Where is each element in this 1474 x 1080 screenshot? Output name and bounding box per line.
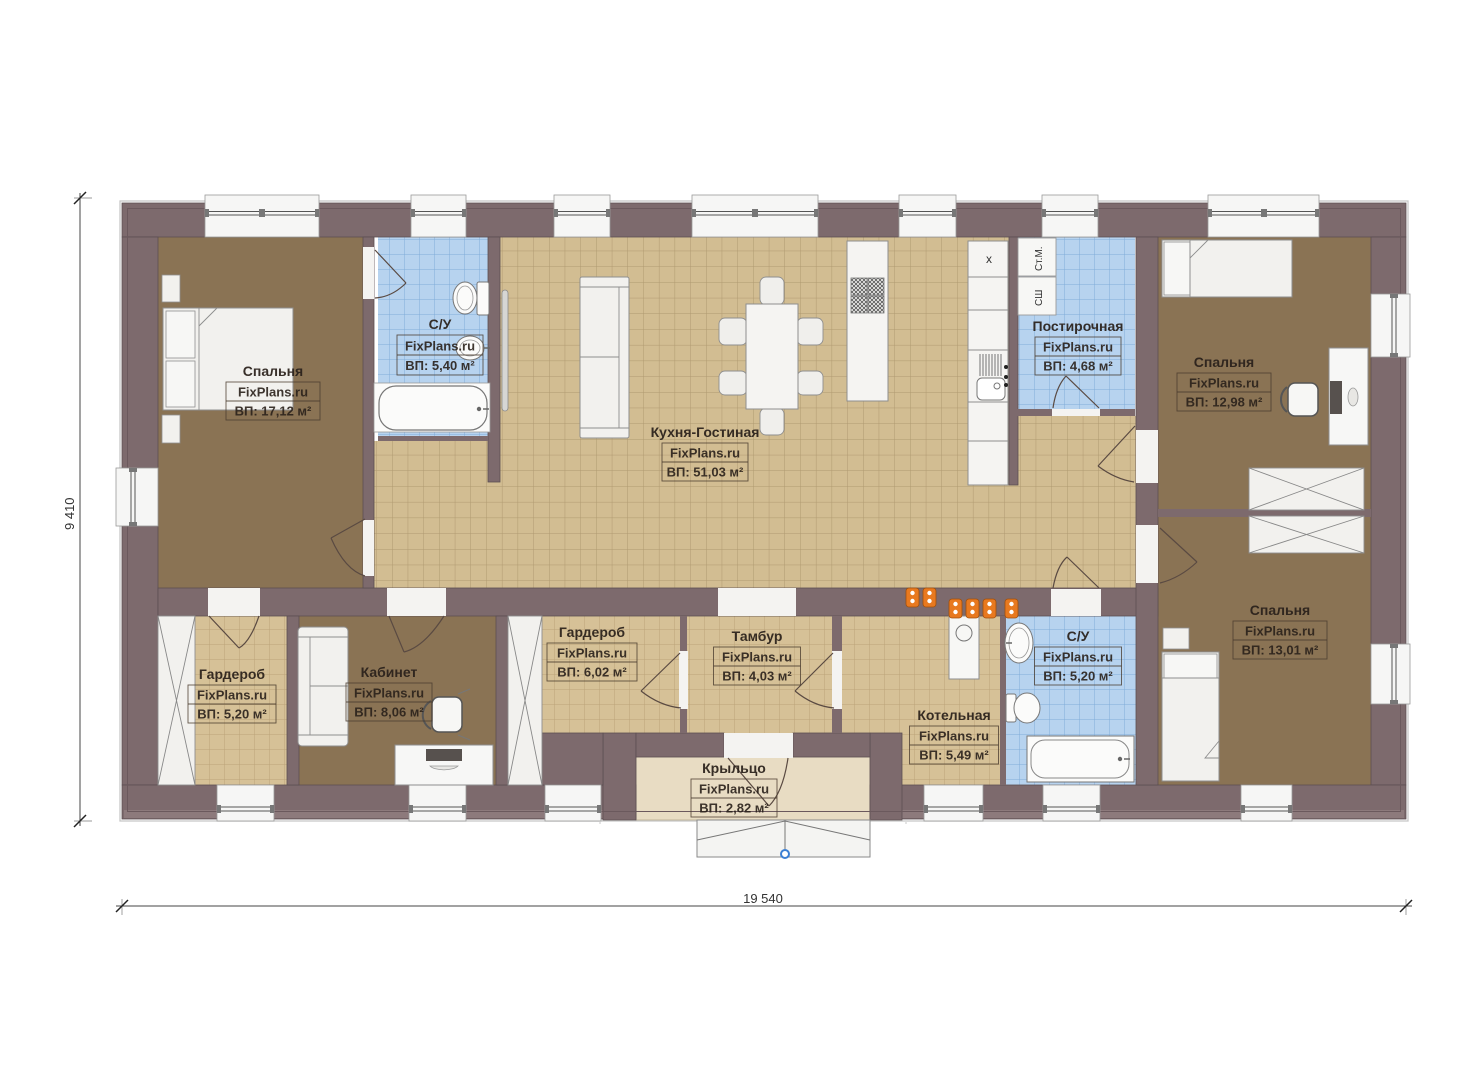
svg-text:Постирочная: Постирочная xyxy=(1033,318,1124,334)
svg-text:Кухня-Гостиная: Кухня-Гостиная xyxy=(651,424,760,440)
svg-text:Котельная: Котельная xyxy=(917,707,990,723)
svg-text:ВП: 5,20 м²: ВП: 5,20 м² xyxy=(197,707,267,722)
svg-text:FixPlans.ru: FixPlans.ru xyxy=(722,650,792,665)
svg-text:Ст.М.: Ст.М. xyxy=(1034,246,1045,271)
svg-text:FixPlans.ru: FixPlans.ru xyxy=(557,646,627,661)
svg-text:FixPlans.ru: FixPlans.ru xyxy=(405,339,475,354)
svg-text:С/У: С/У xyxy=(429,316,452,332)
svg-text:ВП: 4,03 м²: ВП: 4,03 м² xyxy=(722,669,792,684)
svg-text:Гардероб: Гардероб xyxy=(199,666,266,682)
svg-text:ВП: 6,02 м²: ВП: 6,02 м² xyxy=(557,665,627,680)
svg-text:ВП: 13,01 м²: ВП: 13,01 м² xyxy=(1242,643,1319,658)
svg-text:FixPlans.ru: FixPlans.ru xyxy=(354,686,424,701)
svg-text:FixPlans.ru: FixPlans.ru xyxy=(670,446,740,461)
svg-text:ВП: 5,40 м²: ВП: 5,40 м² xyxy=(405,358,475,373)
svg-text:ВП: 12,98 м²: ВП: 12,98 м² xyxy=(1186,395,1263,410)
svg-text:ВП: 4,68 м²: ВП: 4,68 м² xyxy=(1043,359,1113,374)
svg-text:ВП: 5,20 м²: ВП: 5,20 м² xyxy=(1043,669,1113,684)
svg-text:ВП: 5,49 м²: ВП: 5,49 м² xyxy=(919,748,989,763)
svg-text:FixPlans.ru: FixPlans.ru xyxy=(197,688,267,703)
svg-text:19 540: 19 540 xyxy=(743,891,783,906)
svg-text:Спальня: Спальня xyxy=(1250,602,1310,618)
svg-text:ВП: 17,12 м²: ВП: 17,12 м² xyxy=(235,404,312,419)
svg-text:FixPlans.ru: FixPlans.ru xyxy=(1043,340,1113,355)
svg-text:FixPlans.ru: FixPlans.ru xyxy=(1189,376,1259,391)
svg-text:9 410: 9 410 xyxy=(62,497,77,530)
svg-text:FixPlans.ru: FixPlans.ru xyxy=(1245,624,1315,639)
svg-text:СШ: СШ xyxy=(1034,290,1045,306)
svg-text:FixPlans.ru: FixPlans.ru xyxy=(238,385,308,400)
svg-text:ВП: 51,03 м²: ВП: 51,03 м² xyxy=(667,465,744,480)
svg-text:x: x xyxy=(986,252,992,266)
svg-text:Кабинет: Кабинет xyxy=(361,664,418,680)
svg-text:ВП: 8,06 м²: ВП: 8,06 м² xyxy=(354,705,424,720)
svg-text:FixPlans.ru: FixPlans.ru xyxy=(699,782,769,797)
svg-text:Тамбур: Тамбур xyxy=(732,628,783,644)
svg-text:Гардероб: Гардероб xyxy=(559,624,626,640)
svg-text:Крыльцо: Крыльцо xyxy=(702,760,766,776)
svg-text:Спальня: Спальня xyxy=(1194,354,1254,370)
svg-text:ВП: 2,82 м²: ВП: 2,82 м² xyxy=(699,801,769,816)
svg-text:С/У: С/У xyxy=(1067,628,1090,644)
svg-text:Спальня: Спальня xyxy=(243,363,303,379)
svg-text:FixPlans.ru: FixPlans.ru xyxy=(1043,650,1113,665)
svg-text:FixPlans.ru: FixPlans.ru xyxy=(919,729,989,744)
